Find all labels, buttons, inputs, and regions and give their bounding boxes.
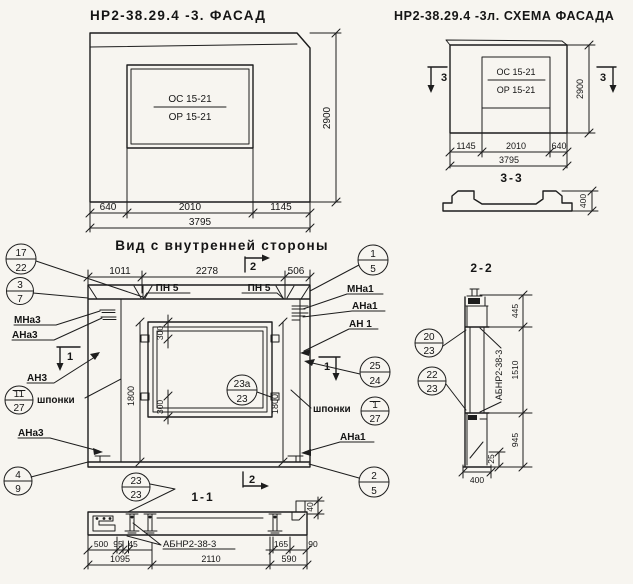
callout-11-27: 11 27 xyxy=(5,386,33,414)
leader-arrow-icon xyxy=(93,448,103,455)
section-3-label-left: 3 xyxy=(441,72,447,84)
schema-dim-2900: 2900 xyxy=(575,79,585,99)
dim-90: 90 xyxy=(308,539,318,549)
anchor-fill xyxy=(468,298,480,304)
callout-20-23: 20 23 xyxy=(415,329,466,357)
dim-1095: 1095 xyxy=(110,554,130,564)
callout-bottom: 5 xyxy=(370,264,376,275)
label-ana3-top: АНа3 xyxy=(12,330,38,341)
anchor-fill xyxy=(468,415,477,420)
label-shponki-left: шпонки xyxy=(37,395,75,406)
facade-drawing: НР2-38.29.4 -3. ФАСАД ОС 15-21 ОР 15-21 … xyxy=(86,8,341,232)
callout-top: 11 xyxy=(14,389,25,400)
callout-top: 23 xyxy=(130,476,142,487)
schema-dim-640: 640 xyxy=(551,141,566,151)
dim-1800-left: 1800 xyxy=(126,386,136,406)
schema-window xyxy=(482,57,550,108)
section-arrow-icon xyxy=(428,85,435,93)
callout-23a-23: 23а 23 xyxy=(227,375,271,405)
callout-bottom: 7 xyxy=(17,294,23,305)
dim-400: 400 xyxy=(470,475,484,485)
drawing-sheet: НР2-38.29.4 -3. ФАСАД ОС 15-21 ОР 15-21 … xyxy=(0,0,633,584)
section-3-label-right: 3 xyxy=(600,72,606,84)
right-end-detail xyxy=(292,501,305,520)
dim-45: 45 xyxy=(128,539,138,549)
callout-1-27: 1 27 xyxy=(361,397,389,425)
facade-mark-bottom: ОР 15-21 xyxy=(169,112,212,123)
callout-bottom: 23 xyxy=(236,394,248,405)
callout-top: 17 xyxy=(15,248,27,259)
facade-mark-top: ОС 15-21 xyxy=(168,94,212,105)
dim-300-top: 300 xyxy=(155,326,165,340)
schema-dim-2010: 2010 xyxy=(506,141,526,151)
facade-dim-2900: 2900 xyxy=(322,106,333,129)
technical-drawing: НР2-38.29.4 -3. ФАСАД ОС 15-21 ОР 15-21 … xyxy=(0,0,633,584)
callout-top: 22 xyxy=(426,370,438,381)
callout-bottom: 27 xyxy=(13,403,25,414)
callout-bottom: 27 xyxy=(369,414,381,425)
profile-detail-lines xyxy=(466,289,488,465)
label-mna3: МНа3 xyxy=(14,315,41,326)
section-3-3-title: 3-3 xyxy=(500,171,523,185)
schema-dim-3795: 3795 xyxy=(499,155,519,165)
callout-top: 23а xyxy=(234,379,251,390)
dim-40: 40 xyxy=(305,502,315,512)
dim-2278: 2278 xyxy=(196,266,219,277)
rebar-dot xyxy=(131,516,134,519)
callout-bottom: 23 xyxy=(423,346,435,357)
callout-bottom: 24 xyxy=(369,376,381,387)
leader-arrow-icon xyxy=(301,449,311,456)
inner-view-drawing: Вид с внутренней стороны 1011 2278 506 2… xyxy=(4,238,390,512)
leader-an1 xyxy=(304,329,378,351)
part-label-abnr: АБНР2-38-3 xyxy=(494,350,504,400)
panel-top-joints xyxy=(88,285,310,299)
section-2-label-top: 2 xyxy=(250,261,256,273)
dim-1011: 1011 xyxy=(109,266,131,277)
facade-title: НР2-38.29.4 -3. ФАСАД xyxy=(90,8,266,23)
schema-dim-1145: 1145 xyxy=(456,141,475,151)
callout-leader xyxy=(227,390,271,397)
leader-ana3-bottom xyxy=(18,438,99,451)
label-an3: АН3 xyxy=(27,373,47,384)
rebar-dot xyxy=(103,517,106,520)
label-mna1: МНа1 xyxy=(347,284,374,295)
dim-506: 506 xyxy=(288,266,305,277)
dim-945: 945 xyxy=(510,433,520,447)
leader-shponki-right xyxy=(291,390,311,408)
label-ana1-bottom: АНа1 xyxy=(340,432,366,443)
leader-ana1-bottom xyxy=(305,442,374,452)
facade-dim-2010: 2010 xyxy=(179,202,202,213)
section-3-3-dim-400: 400 xyxy=(578,194,588,208)
profile-outline xyxy=(88,512,307,535)
callout-2-5: 2 5 xyxy=(309,464,389,497)
callout-4-9: 4 9 xyxy=(4,462,88,495)
dim-1510: 1510 xyxy=(510,360,520,379)
facade-dim-1145: 1145 xyxy=(270,202,292,213)
facade-dim-3795: 3795 xyxy=(189,217,212,228)
rebar-dot xyxy=(109,517,112,520)
label-an1: АН 1 xyxy=(349,319,372,330)
callout-top: 1 xyxy=(370,249,376,260)
section-1-1-title: 1-1 xyxy=(191,490,214,504)
dim-95: 95 xyxy=(113,539,123,549)
section-arrow-icon xyxy=(262,255,270,262)
dim-25: 25 xyxy=(486,454,496,464)
section-arrow-icon xyxy=(57,363,64,371)
facade-dim-640: 640 xyxy=(100,202,117,213)
schema-mark-top: ОС 15-21 xyxy=(496,67,535,77)
callout-bottom: 9 xyxy=(15,484,21,495)
section-arrow-icon xyxy=(610,85,617,93)
schema-drawing: НР2-38.29.4 -3л. СХЕМА ФАСАДА ОС 15-21 О… xyxy=(394,9,617,215)
section-2-2-drawing: 2-2 20 23 22 23 АБНР2-38-3 445 1510 945 … xyxy=(415,261,532,485)
callout-3-7: 3 7 xyxy=(7,278,89,306)
dim-2110: 2110 xyxy=(201,554,220,564)
label-shponki-right: шпонки xyxy=(313,404,351,415)
callout-bottom: 23 xyxy=(130,490,142,501)
leader-shponki-left xyxy=(85,379,121,398)
section-3-3-profile xyxy=(443,191,572,211)
callout-leader xyxy=(309,464,389,482)
callout-25-24: 25 24 xyxy=(304,357,390,387)
section-1-1-drawing: 1-1 40 500 95 45 АБНР2-38-3 165 90 1095 … xyxy=(84,490,324,569)
section-1-label-left: 1 xyxy=(67,351,73,363)
facade-panel-top-band xyxy=(90,33,310,48)
dim-445: 445 xyxy=(510,304,520,318)
callout-top: 4 xyxy=(15,470,21,481)
inner-view-title: Вид с внутренней стороны xyxy=(115,238,329,253)
rebar-dot xyxy=(274,516,277,519)
callout-bottom: 23 xyxy=(426,384,438,395)
window-frame-outer xyxy=(148,322,272,417)
callout-top: 25 xyxy=(369,361,381,372)
rebar-dot xyxy=(149,516,152,519)
schema-mark-bottom: ОР 15-21 xyxy=(497,85,536,95)
label-ana1-top: АНа1 xyxy=(352,301,378,312)
callout-leader xyxy=(418,381,466,410)
section-arrow-icon xyxy=(333,373,340,381)
callout-bottom: 22 xyxy=(15,263,27,274)
schema-panel-top-strip xyxy=(446,40,567,45)
callout-top: 3 xyxy=(17,280,23,291)
callout-top: 20 xyxy=(423,332,435,343)
dim-590: 590 xyxy=(281,554,296,564)
callout-top: 1 xyxy=(372,400,378,411)
callout-23-23: 23 23 xyxy=(122,473,175,512)
dim-165: 165 xyxy=(274,539,288,549)
section-2-label-bottom: 2 xyxy=(249,474,255,486)
callout-bottom: 5 xyxy=(371,486,377,497)
dim-300-bottom: 300 xyxy=(155,400,165,414)
section-arrow-icon xyxy=(261,483,269,490)
callout-22-23: 22 23 xyxy=(418,367,466,410)
dim-500: 500 xyxy=(94,539,108,549)
window-frame-middle xyxy=(153,327,267,412)
schema-title: НР2-38.29.4 -3л. СХЕМА ФАСАДА xyxy=(394,9,614,23)
callout-top: 2 xyxy=(371,471,377,482)
section-2-2-title: 2-2 xyxy=(470,261,493,275)
part-label-abnr: АБНР2-38-3 xyxy=(163,539,216,550)
label-ana3-bottom: АНа3 xyxy=(18,428,44,439)
rebar-dot xyxy=(96,517,99,520)
dim-lines xyxy=(480,295,532,467)
